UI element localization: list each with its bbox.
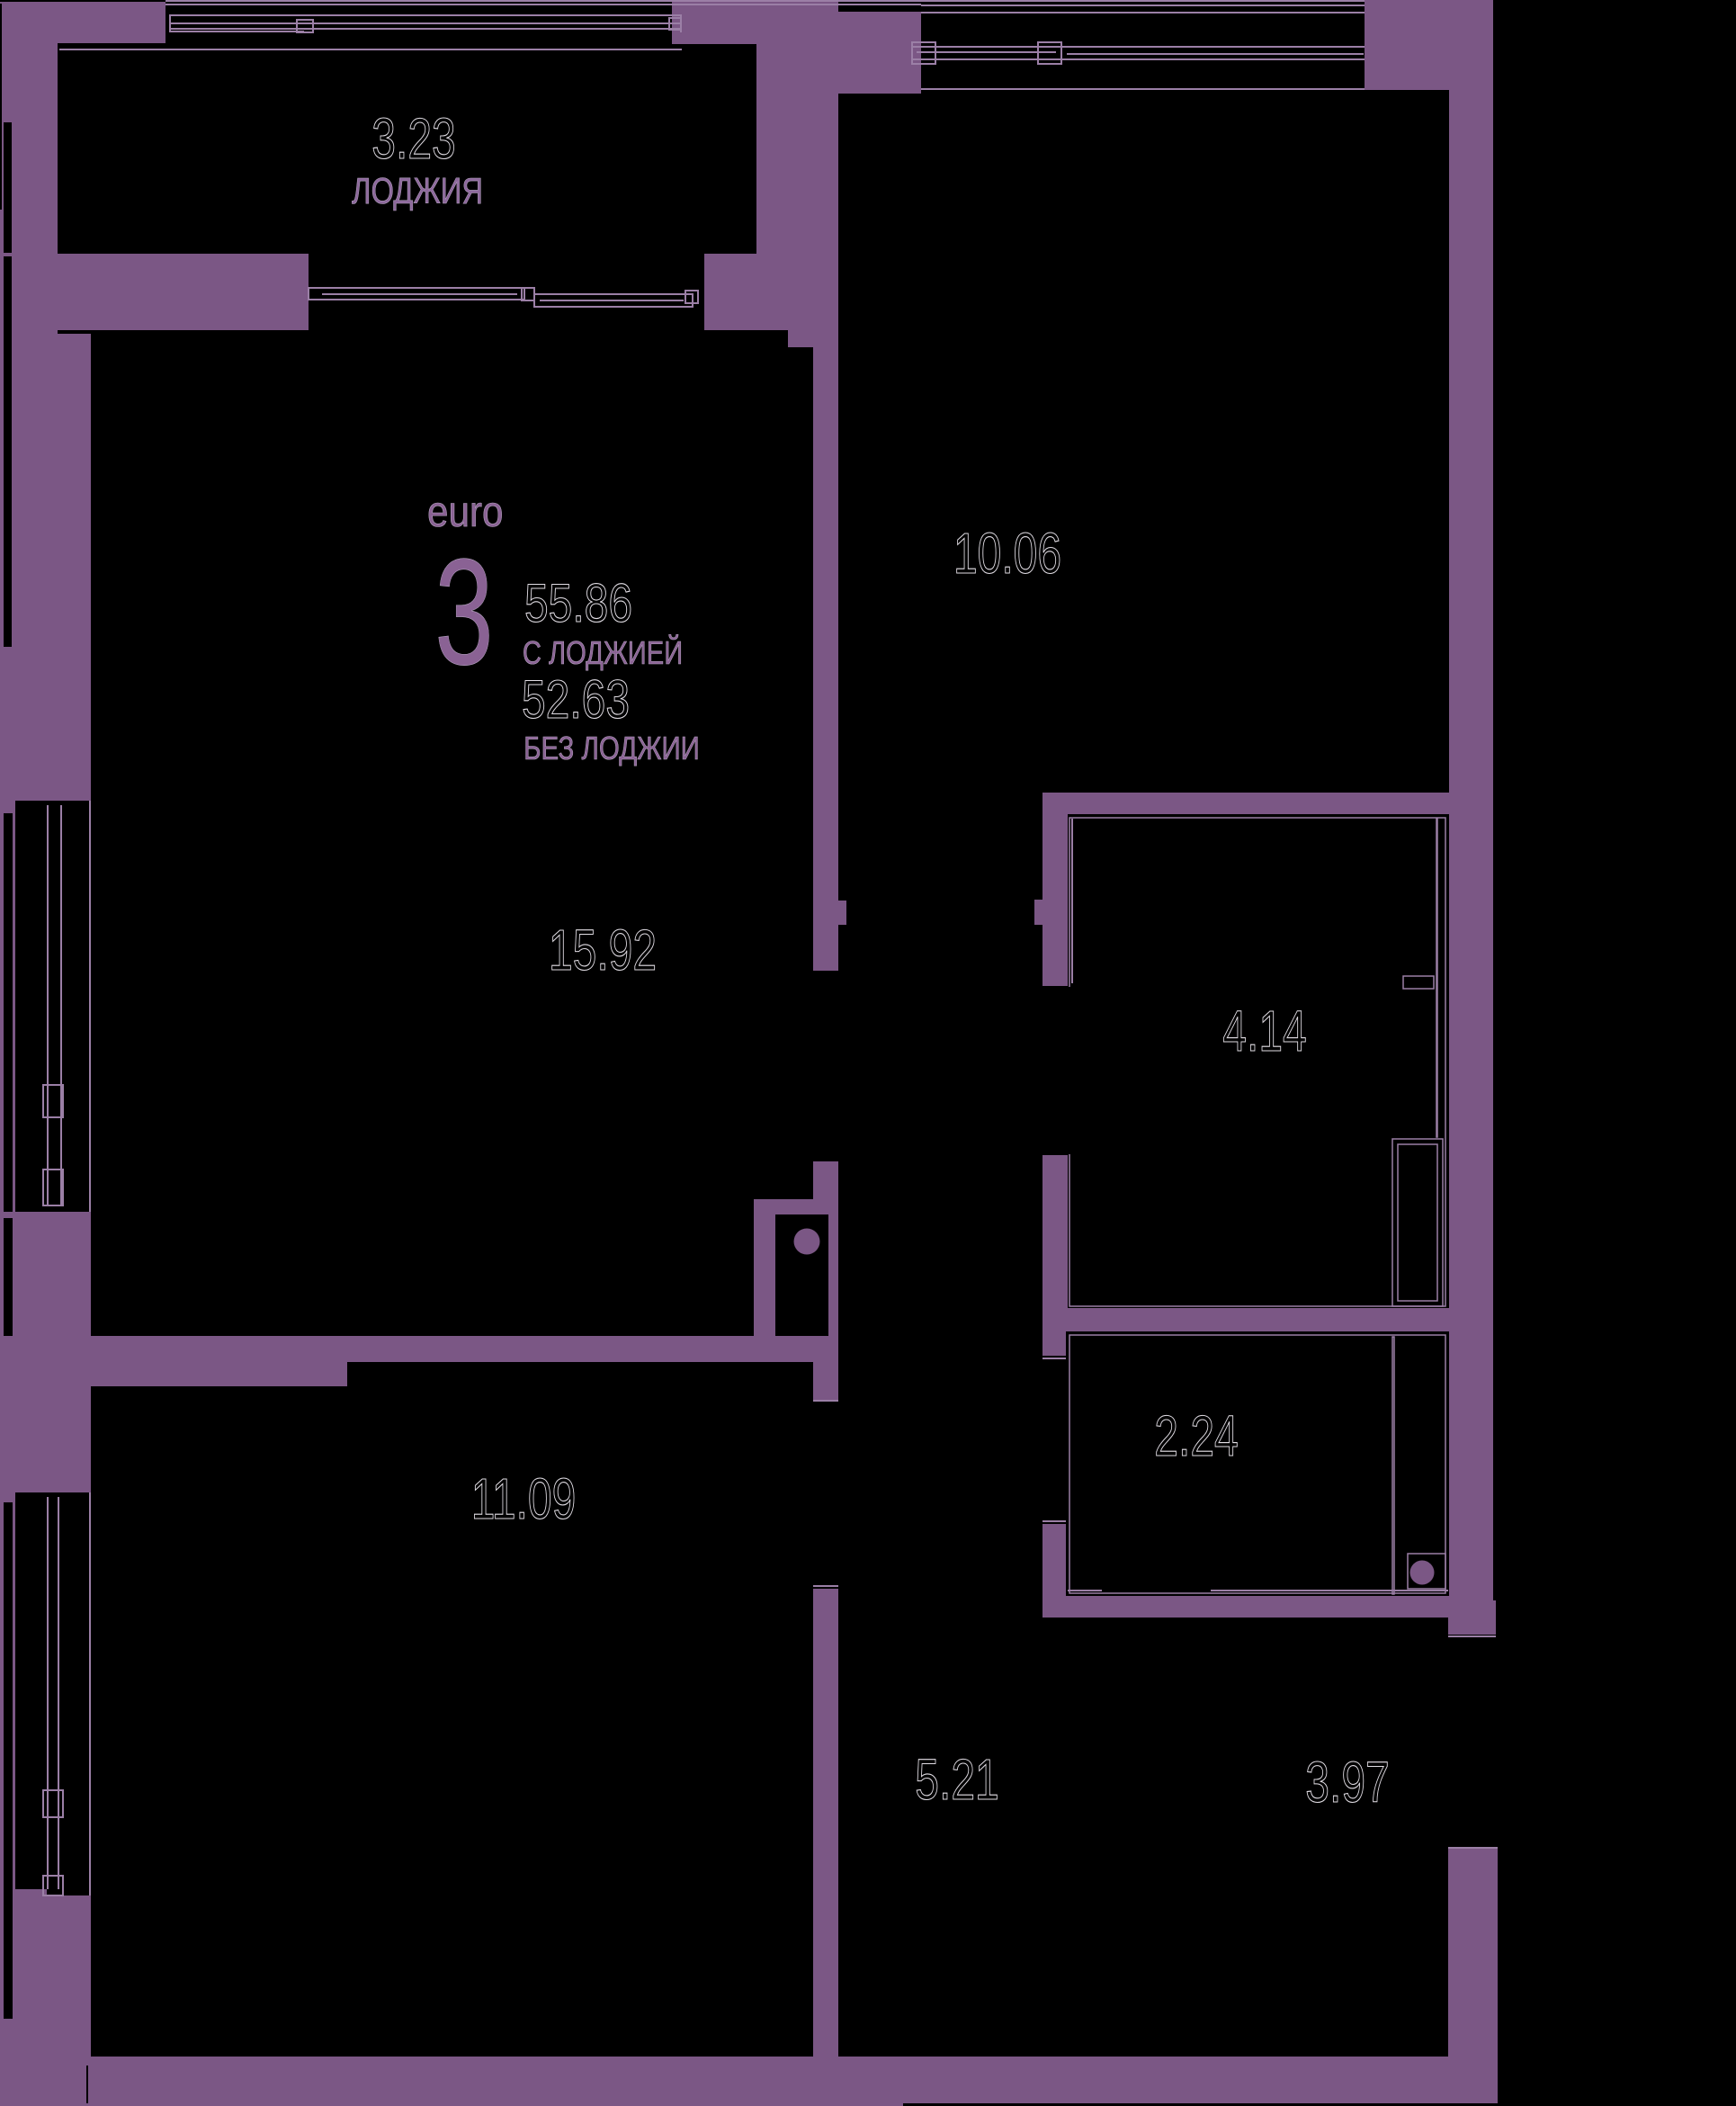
svg-text:3: 3 [434, 527, 493, 696]
svg-text:52.63: 52.63 [522, 669, 630, 730]
svg-text:55.86: 55.86 [524, 573, 632, 633]
svg-text:4.14: 4.14 [1222, 999, 1306, 1062]
svg-text:3.23: 3.23 [371, 106, 455, 170]
svg-text:2.24: 2.24 [1154, 1403, 1238, 1467]
svg-text:3.97: 3.97 [1305, 1750, 1389, 1814]
svg-text:С ЛОДЖИЕЙ: С ЛОДЖИЕЙ [523, 634, 683, 671]
svg-text:ЛОДЖИЯ: ЛОДЖИЯ [352, 169, 483, 211]
svg-text:10.06: 10.06 [953, 521, 1061, 585]
svg-text:11.09: 11.09 [471, 1466, 577, 1530]
svg-text:5.21: 5.21 [915, 1747, 998, 1811]
svg-text:15.92: 15.92 [549, 918, 657, 981]
svg-text:БЕЗ ЛОДЖИИ: БЕЗ ЛОДЖИИ [523, 730, 700, 766]
